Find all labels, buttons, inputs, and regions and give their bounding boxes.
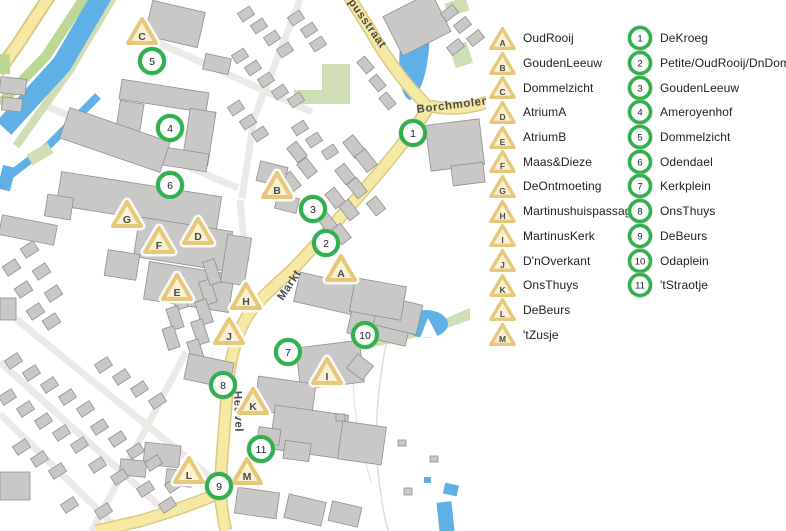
map-number-marker-6: 6 bbox=[156, 171, 184, 199]
legend-item-label: Ameroyenhof bbox=[660, 105, 732, 119]
legend-marker-icon: M bbox=[489, 322, 516, 347]
svg-text:J: J bbox=[500, 260, 505, 270]
triangle-marker-icon: E bbox=[489, 125, 516, 150]
svg-text:6: 6 bbox=[637, 157, 642, 168]
circle-marker-icon: 11 bbox=[627, 272, 653, 298]
legend-item-label: D'nOverkant bbox=[523, 254, 590, 268]
legend-item-label: OnsThuys bbox=[523, 278, 579, 292]
legend-item-letter-J: J D'nOverkant bbox=[489, 248, 638, 273]
legend-marker-icon: 1 bbox=[626, 26, 653, 51]
legend-marker-icon: F bbox=[489, 149, 516, 174]
legend-item-label: AtriumA bbox=[523, 105, 566, 119]
triangle-marker-icon: I bbox=[489, 223, 516, 248]
svg-text:J: J bbox=[226, 331, 232, 343]
circle-marker-icon: 8 bbox=[627, 198, 653, 224]
svg-text:I: I bbox=[501, 236, 503, 246]
svg-text:7: 7 bbox=[285, 347, 291, 359]
circle-marker-icon: 7 bbox=[627, 173, 653, 199]
triangle-marker-icon: G bbox=[489, 174, 516, 199]
triangle-marker-icon: F bbox=[489, 149, 516, 174]
map-number-marker-4: 4 bbox=[156, 114, 184, 142]
legend-item-number-1: 1 DeKroeg bbox=[626, 26, 786, 51]
legend-number-column: 1 DeKroeg 2 Petite/OudRooij/DnDommel 3 G… bbox=[626, 26, 786, 298]
triangle-marker-icon: M bbox=[489, 322, 516, 347]
svg-text:8: 8 bbox=[637, 207, 642, 218]
svg-text:3: 3 bbox=[637, 83, 642, 94]
legend-marker-icon: H bbox=[489, 199, 516, 224]
legend-marker-icon: 6 bbox=[626, 149, 653, 174]
town-map-svg: pusstraatBorchmolendijkMarktHeuvel A B C… bbox=[0, 0, 486, 531]
legend-item-label: Petite/OudRooij/DnDommel bbox=[660, 56, 786, 70]
legend-item-label: DeBeurs bbox=[660, 229, 707, 243]
legend-item-number-11: 11 'tStraotje bbox=[626, 273, 786, 298]
circle-marker-icon: 4 bbox=[627, 99, 653, 125]
legend-marker-icon: D bbox=[489, 100, 516, 125]
map-number-marker-5: 5 bbox=[138, 47, 166, 75]
svg-text:F: F bbox=[156, 240, 163, 252]
circle-marker-icon: 5 bbox=[627, 124, 653, 150]
svg-text:K: K bbox=[499, 285, 506, 295]
svg-text:E: E bbox=[500, 137, 506, 147]
legend-item-letter-B: B GoudenLeeuw bbox=[489, 51, 638, 76]
svg-text:C: C bbox=[499, 87, 505, 97]
legend-item-label: 'tZusje bbox=[523, 328, 559, 342]
legend-item-label: GoudenLeeuw bbox=[660, 81, 739, 95]
triangle-marker-icon: A bbox=[489, 26, 516, 51]
legend-item-letter-E: E AtriumB bbox=[489, 125, 638, 150]
svg-text:K: K bbox=[249, 401, 257, 413]
legend-item-number-6: 6 Odendael bbox=[626, 149, 786, 174]
screenshot-root: pusstraatBorchmolendijkMarktHeuvel A B C… bbox=[0, 0, 786, 531]
legend-item-letter-A: A OudRooij bbox=[489, 26, 638, 51]
legend-marker-icon: 2 bbox=[626, 51, 653, 76]
circle-marker-icon: 3 bbox=[627, 75, 653, 101]
svg-text:G: G bbox=[123, 214, 131, 226]
svg-text:F: F bbox=[500, 161, 505, 171]
svg-text:M: M bbox=[243, 471, 252, 483]
circle-marker-icon: 1 bbox=[627, 25, 653, 51]
svg-text:A: A bbox=[337, 268, 345, 280]
legend-item-label: OudRooij bbox=[523, 31, 574, 45]
triangle-marker-icon: K bbox=[489, 273, 516, 298]
triangle-marker-icon: J bbox=[489, 248, 516, 273]
svg-text:A: A bbox=[499, 38, 505, 48]
legend-marker-icon: 11 bbox=[626, 273, 653, 298]
legend-item-letter-I: I MartinusKerk bbox=[489, 224, 638, 249]
legend-marker-icon: 5 bbox=[626, 125, 653, 150]
svg-text:9: 9 bbox=[216, 481, 222, 493]
svg-text:B: B bbox=[273, 185, 281, 197]
legend-item-label: AtriumB bbox=[523, 130, 566, 144]
legend-marker-icon: E bbox=[489, 125, 516, 150]
legend-marker-icon: L bbox=[489, 297, 516, 322]
legend-item-number-4: 4 Ameroyenhof bbox=[626, 100, 786, 125]
legend-item-number-9: 9 DeBeurs bbox=[626, 224, 786, 249]
map-number-marker-11: 11 bbox=[247, 435, 275, 463]
svg-text:1: 1 bbox=[637, 34, 642, 45]
svg-text:C: C bbox=[138, 31, 146, 43]
legend-item-label: DeBeurs bbox=[523, 303, 570, 317]
svg-text:7: 7 bbox=[637, 182, 642, 193]
triangle-marker-icon: B bbox=[489, 51, 516, 76]
legend-item-number-8: 8 OnsThuys bbox=[626, 199, 786, 224]
legend-item-label: Odaplein bbox=[660, 254, 709, 268]
map-number-marker-9: 9 bbox=[205, 472, 233, 500]
svg-text:5: 5 bbox=[637, 133, 642, 144]
legend-letter-column: A OudRooij B GoudenLeeuw C Dommelzicht D… bbox=[489, 26, 638, 347]
legend-panel: A OudRooij B GoudenLeeuw C Dommelzicht D… bbox=[486, 0, 786, 531]
legend-item-label: Kerkplein bbox=[660, 179, 711, 193]
legend-item-number-2: 2 Petite/OudRooij/DnDommel bbox=[626, 51, 786, 76]
legend-item-letter-K: K OnsThuys bbox=[489, 273, 638, 298]
svg-text:D: D bbox=[194, 231, 202, 243]
legend-item-label: Odendael bbox=[660, 155, 713, 169]
legend-item-letter-M: M 'tZusje bbox=[489, 322, 638, 347]
svg-text:11: 11 bbox=[256, 444, 267, 456]
circle-marker-icon: 6 bbox=[627, 149, 653, 175]
legend-marker-icon: I bbox=[489, 223, 516, 248]
svg-text:4: 4 bbox=[637, 108, 642, 119]
svg-text:L: L bbox=[186, 470, 193, 482]
circle-marker-icon: 10 bbox=[627, 248, 653, 274]
map-number-marker-2: 2 bbox=[312, 229, 340, 257]
svg-text:10: 10 bbox=[634, 256, 645, 267]
legend-marker-icon: J bbox=[489, 248, 516, 273]
legend-item-label: Dommelzicht bbox=[660, 130, 730, 144]
svg-text:E: E bbox=[173, 287, 180, 299]
circle-marker-icon: 9 bbox=[627, 223, 653, 249]
legend-item-label: DeKroeg bbox=[660, 31, 708, 45]
triangle-marker-icon: D bbox=[489, 100, 516, 125]
legend-marker-icon: 10 bbox=[626, 248, 653, 273]
legend-item-letter-D: D AtriumA bbox=[489, 100, 638, 125]
map-number-marker-3: 3 bbox=[299, 195, 327, 223]
svg-text:H: H bbox=[499, 211, 505, 221]
svg-text:4: 4 bbox=[167, 123, 173, 135]
map-number-marker-10: 10 bbox=[351, 321, 379, 349]
legend-item-number-5: 5 Dommelzicht bbox=[626, 125, 786, 150]
legend-marker-icon: 4 bbox=[626, 100, 653, 125]
legend-item-number-7: 7 Kerkplein bbox=[626, 174, 786, 199]
legend-item-label: GoudenLeeuw bbox=[523, 56, 602, 70]
svg-text:8: 8 bbox=[220, 380, 226, 392]
svg-text:10: 10 bbox=[359, 330, 371, 342]
svg-text:5: 5 bbox=[149, 56, 155, 68]
legend-marker-icon: 9 bbox=[626, 223, 653, 248]
svg-text:2: 2 bbox=[637, 59, 642, 70]
legend-marker-icon: G bbox=[489, 174, 516, 199]
legend-marker-icon: A bbox=[489, 26, 516, 51]
svg-text:D: D bbox=[499, 112, 505, 122]
legend-item-number-3: 3 GoudenLeeuw bbox=[626, 75, 786, 100]
map-number-marker-1: 1 bbox=[399, 119, 427, 147]
svg-text:G: G bbox=[499, 186, 506, 196]
svg-text:B: B bbox=[499, 63, 505, 73]
svg-text:9: 9 bbox=[637, 231, 642, 242]
legend-marker-icon: K bbox=[489, 273, 516, 298]
triangle-marker-icon: C bbox=[489, 75, 516, 100]
town-map: pusstraatBorchmolendijkMarktHeuvel A B C… bbox=[0, 0, 486, 531]
legend-item-letter-G: G DeOntmoeting bbox=[489, 174, 638, 199]
legend-marker-icon: 7 bbox=[626, 174, 653, 199]
legend-item-letter-C: C Dommelzicht bbox=[489, 75, 638, 100]
legend-marker-icon: 8 bbox=[626, 199, 653, 224]
legend-item-letter-F: F Maas&Dieze bbox=[489, 149, 638, 174]
legend-item-label: Dommelzicht bbox=[523, 81, 593, 95]
svg-text:I: I bbox=[326, 371, 329, 383]
legend-item-number-10: 10 Odaplein bbox=[626, 248, 786, 273]
legend-item-label: MartinusKerk bbox=[523, 229, 595, 243]
map-number-marker-8: 8 bbox=[209, 371, 237, 399]
svg-text:H: H bbox=[242, 296, 250, 308]
legend-item-label: OnsThuys bbox=[660, 204, 716, 218]
svg-text:11: 11 bbox=[635, 281, 645, 292]
legend-item-label: Maas&Dieze bbox=[523, 155, 592, 169]
legend-item-letter-L: L DeBeurs bbox=[489, 298, 638, 323]
svg-text:M: M bbox=[499, 334, 506, 344]
svg-text:1: 1 bbox=[410, 128, 416, 140]
svg-text:2: 2 bbox=[323, 238, 329, 250]
legend-item-letter-H: H Martinushuispassage bbox=[489, 199, 638, 224]
legend-marker-icon: B bbox=[489, 51, 516, 76]
legend-marker-icon: 3 bbox=[626, 75, 653, 100]
svg-text:6: 6 bbox=[167, 180, 173, 192]
legend-marker-icon: C bbox=[489, 75, 516, 100]
svg-text:L: L bbox=[500, 310, 505, 320]
legend-item-label: 'tStraotje bbox=[660, 278, 708, 292]
triangle-marker-icon: L bbox=[489, 297, 516, 322]
legend-item-label: Martinushuispassage bbox=[523, 204, 638, 218]
map-number-marker-7: 7 bbox=[274, 338, 302, 366]
circle-marker-icon: 2 bbox=[627, 50, 653, 76]
legend-item-label: DeOntmoeting bbox=[523, 179, 602, 193]
triangle-marker-icon: H bbox=[489, 199, 516, 224]
svg-text:3: 3 bbox=[310, 204, 316, 216]
